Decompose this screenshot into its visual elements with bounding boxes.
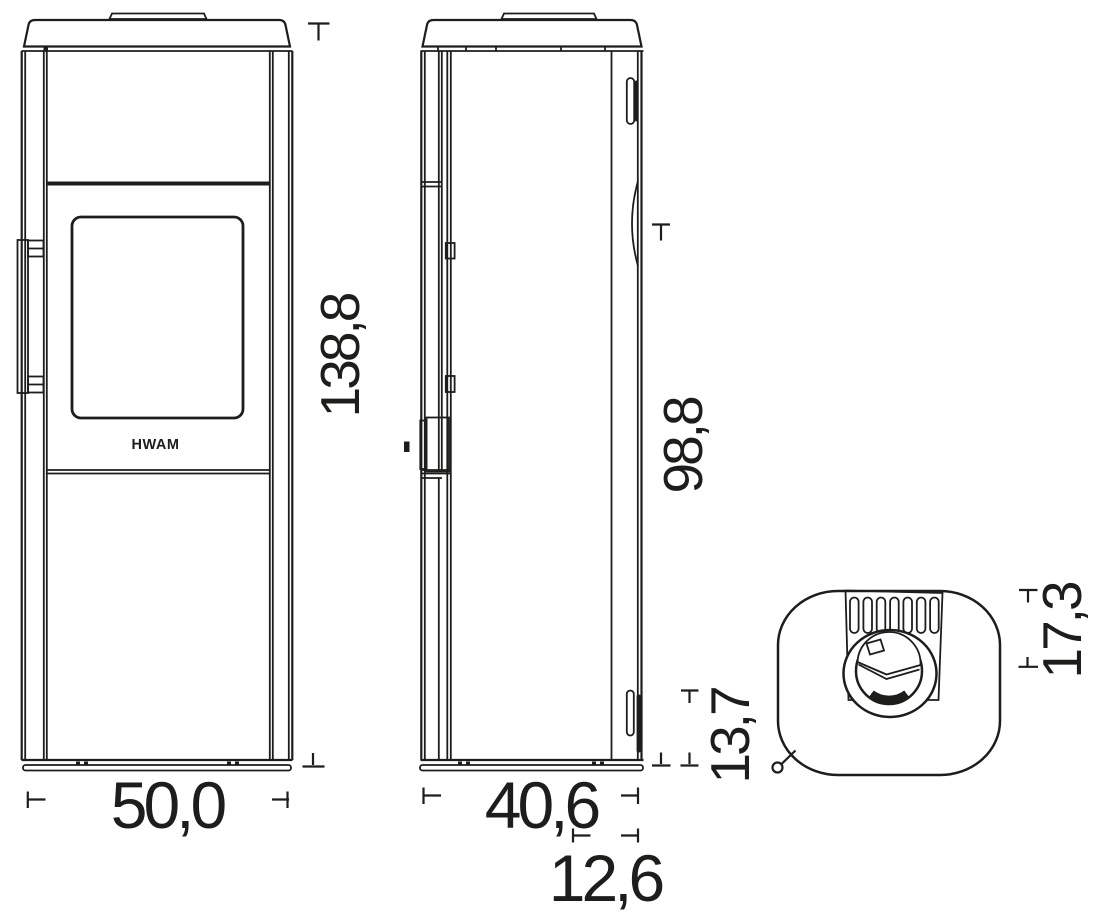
front-width-dimension: 50,0	[28, 768, 289, 842]
dim-tick-left	[424, 788, 442, 805]
hinge-notch	[44, 47, 49, 52]
side-view	[404, 14, 644, 771]
dim-tick-top	[681, 691, 699, 704]
latch-knob	[404, 442, 410, 453]
body-side-edges-front	[22, 51, 293, 760]
door-glass	[72, 217, 243, 418]
back-edge-lines-side	[612, 51, 642, 760]
dim-tick-right	[621, 788, 639, 805]
top-plate-front	[24, 20, 290, 47]
flue-offset-label: 12,6	[549, 841, 663, 913]
air-vent-slots	[850, 598, 939, 634]
dim-tick-left	[28, 792, 46, 809]
top-plate-side	[423, 20, 642, 47]
flue-collar-side	[502, 14, 597, 20]
side-height-dimension: 98,8	[652, 225, 714, 766]
dim-tick-top	[308, 24, 330, 41]
door-bottom-seam	[47, 470, 270, 474]
handle-knob	[773, 763, 783, 773]
flue-offset-dimension: 12,6	[549, 829, 663, 913]
dim-tick-right	[272, 792, 289, 809]
intake-height-dimension: 13,7	[681, 688, 762, 783]
dim-tick-top	[652, 225, 670, 241]
front-width-label: 50,0	[111, 768, 226, 842]
side-depth-label: 40,6	[485, 768, 599, 842]
front-height-label: 138,8	[309, 293, 371, 417]
upper-air-vent-side	[627, 78, 638, 124]
lower-air-vent-side	[627, 691, 641, 753]
intake-height-label: 13,7	[699, 688, 761, 783]
front-height-dimension: 138,8	[303, 24, 372, 767]
top-flue-offset-label: 17,3	[1031, 582, 1093, 678]
front-view: HWAM	[18, 14, 293, 771]
dim-tick-bottom	[303, 753, 325, 767]
top-view	[773, 591, 1001, 776]
dim-tick-bottom	[681, 753, 699, 766]
dim-tick-bottom	[652, 753, 671, 766]
door-handle-top-view	[773, 751, 796, 773]
top-flue-offset-dimension: 17,3	[1019, 582, 1094, 678]
front-edge-lines-side	[421, 51, 451, 760]
side-depth-dimension: 40,6	[424, 768, 639, 842]
door-top-band	[47, 182, 270, 186]
stove-dimension-drawing: HWAM 138,8 50,0	[0, 0, 1101, 913]
side-height-label: 98,8	[652, 397, 714, 493]
brand-logo: HWAM	[132, 437, 180, 453]
flue-collar-front	[110, 14, 207, 20]
